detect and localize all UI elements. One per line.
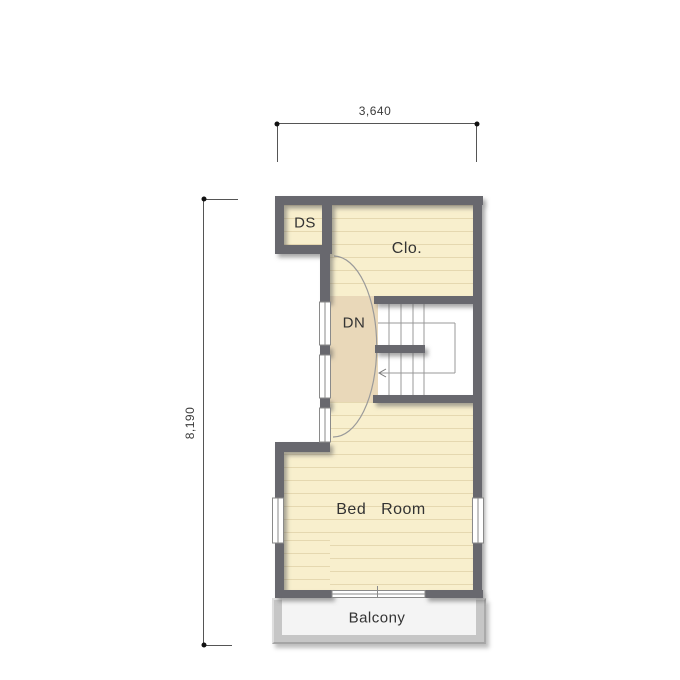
dimension-width-extension-left bbox=[277, 123, 278, 162]
dimension-height-label: 8,190 bbox=[183, 407, 197, 440]
floor-plan-canvas: 3,640 8,190 bbox=[0, 0, 680, 680]
bedroom-label: Bed Room bbox=[336, 501, 425, 519]
dimension-dot bbox=[275, 122, 280, 127]
wall-bedroom-bottom-right bbox=[425, 590, 483, 598]
balcony-label: Balcony bbox=[349, 610, 406, 627]
wall-bedroom-topleft bbox=[275, 442, 330, 452]
wall-bedroom-left bbox=[275, 442, 284, 598]
hall-floor bbox=[330, 296, 378, 402]
window-icon bbox=[320, 302, 331, 345]
window-icon bbox=[473, 498, 484, 543]
closet-label: Clo. bbox=[392, 240, 422, 258]
dimension-dot bbox=[202, 643, 207, 648]
dimension-width-extension-right bbox=[476, 123, 477, 162]
dimension-height-extension-bottom bbox=[203, 645, 232, 646]
dimension-height-line bbox=[203, 199, 204, 645]
sliding-door-icon bbox=[332, 591, 425, 598]
wall-right bbox=[473, 196, 482, 598]
wall-hall-left-upper bbox=[320, 253, 330, 302]
wall-top bbox=[275, 196, 483, 205]
bedroom-floor bbox=[330, 402, 473, 590]
window-icon bbox=[320, 355, 331, 398]
wall-hall-left-lower bbox=[320, 398, 330, 408]
stairs-down-label: DN bbox=[343, 315, 366, 332]
wall-closet-bottom bbox=[374, 296, 482, 304]
wall-bedroom-bottom-left bbox=[275, 590, 332, 598]
dimension-dot bbox=[475, 122, 480, 127]
wall-ds-bottom bbox=[275, 245, 332, 254]
staircase-floor bbox=[378, 304, 473, 395]
dimension-dot bbox=[202, 197, 207, 202]
window-icon bbox=[273, 498, 284, 543]
window-icon bbox=[320, 408, 331, 442]
wall-ds-left bbox=[275, 196, 284, 254]
wall-hall-left-mid bbox=[320, 345, 330, 355]
bedroom-floor-left bbox=[284, 452, 330, 590]
dimension-width-line bbox=[277, 123, 477, 124]
ds-label: DS bbox=[294, 215, 316, 232]
dimension-height-extension-top bbox=[203, 199, 238, 200]
dimension-width-label: 3,640 bbox=[359, 104, 392, 118]
